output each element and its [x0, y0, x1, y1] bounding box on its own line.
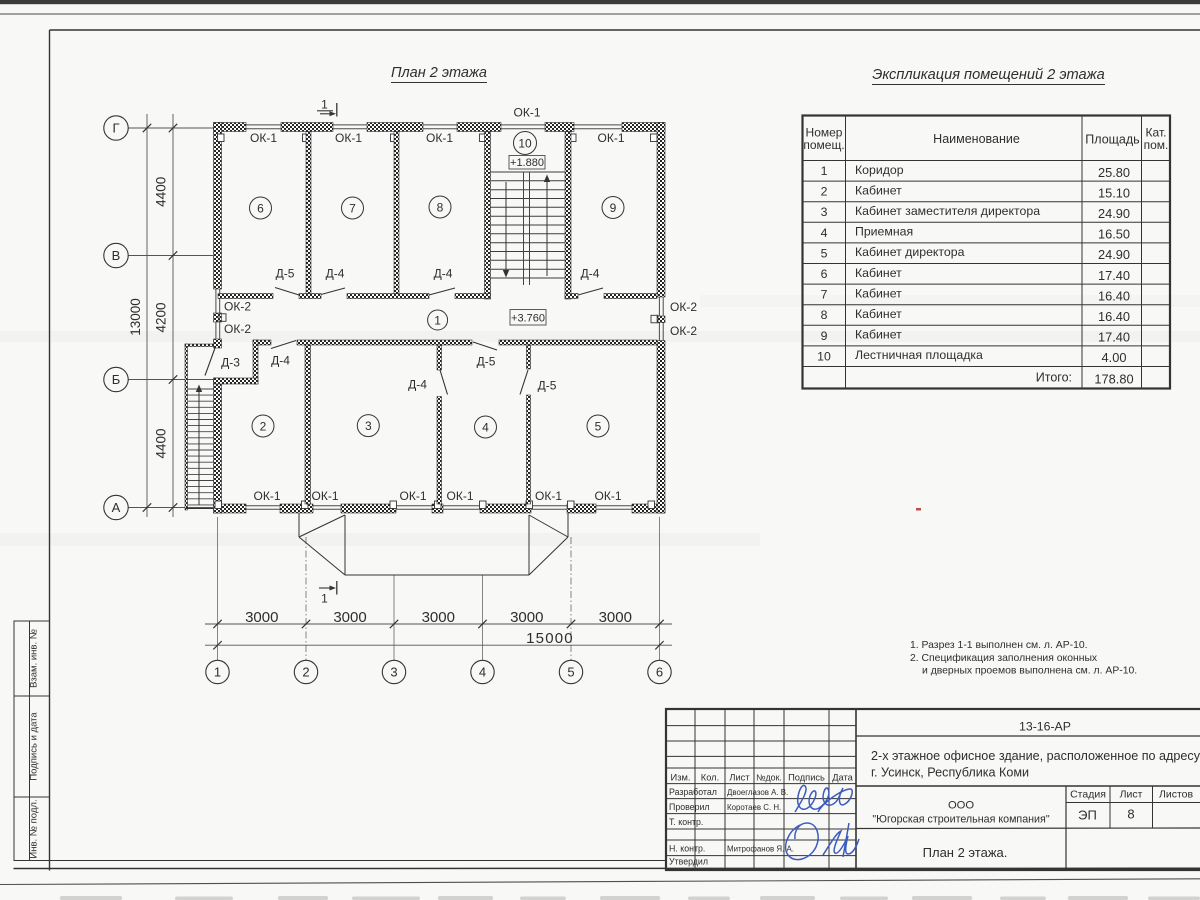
svg-text:А: А: [112, 500, 121, 515]
svg-text:2-х этажное офисное здание, ра: 2-х этажное офисное здание, расположенно…: [871, 749, 1200, 763]
svg-text:ОК-1: ОК-1: [400, 489, 427, 503]
svg-text:ОК-1: ОК-1: [447, 489, 474, 503]
svg-text:Кабинет: Кабинет: [855, 266, 902, 280]
svg-text:Д-5: Д-5: [276, 267, 295, 281]
svg-text:Разработал: Разработал: [669, 787, 717, 797]
svg-text:1: 1: [821, 164, 828, 178]
svg-text:г. Усинск, Республика Коми: г. Усинск, Республика Коми: [871, 766, 1029, 780]
svg-text:4200: 4200: [154, 302, 169, 332]
svg-text:Б: Б: [112, 372, 121, 387]
svg-text:ОК-1: ОК-1: [254, 489, 281, 503]
svg-text:Лист: Лист: [1120, 789, 1143, 801]
svg-text:1: 1: [321, 98, 328, 112]
svg-text:15.10: 15.10: [1098, 185, 1130, 200]
svg-text:ОК-2: ОК-2: [224, 300, 251, 314]
svg-text:5: 5: [821, 246, 828, 260]
svg-text:Коротаев С. Н.: Коротаев С. Н.: [727, 803, 781, 812]
svg-text:Инв. № подл.: Инв. № подл.: [29, 799, 40, 858]
svg-text:и дверных проемов выполнена см: и дверных проемов выполнена см. л. АР-10…: [922, 666, 1137, 677]
svg-text:5: 5: [567, 665, 574, 680]
svg-text:Итого:: Итого:: [1036, 371, 1072, 385]
svg-text:ЭП: ЭП: [1078, 808, 1097, 823]
svg-text:Д-5: Д-5: [477, 355, 496, 369]
svg-text:3: 3: [365, 419, 372, 433]
svg-text:4: 4: [821, 226, 828, 240]
svg-text:25.80: 25.80: [1098, 165, 1130, 180]
svg-text:В: В: [112, 248, 121, 263]
svg-text:Коридор: Коридор: [855, 163, 904, 177]
svg-text:пом.: пом.: [1144, 138, 1169, 152]
svg-text:Д-4: Д-4: [326, 267, 345, 281]
svg-text:Кабинет: Кабинет: [855, 183, 902, 197]
svg-text:16.50: 16.50: [1098, 227, 1130, 242]
svg-text:Митрофанов Я. А.: Митрофанов Я. А.: [727, 845, 794, 854]
svg-text:3000: 3000: [422, 609, 455, 626]
svg-text:Подпись: Подпись: [788, 773, 825, 783]
svg-text:13-16-АР: 13-16-АР: [1019, 720, 1071, 734]
svg-text:Д-4: Д-4: [434, 267, 453, 281]
svg-text:4400: 4400: [154, 177, 169, 207]
svg-text:ОК-2: ОК-2: [670, 324, 697, 338]
svg-text:ОК-2: ОК-2: [224, 322, 251, 336]
svg-text:Приемная: Приемная: [855, 225, 913, 239]
svg-text:24.90: 24.90: [1098, 206, 1130, 221]
svg-text:Кабинет: Кабинет: [855, 307, 902, 321]
svg-text:Г: Г: [112, 121, 119, 136]
svg-text:2: 2: [821, 185, 828, 199]
svg-text:Кабинет директора: Кабинет директора: [855, 245, 965, 259]
svg-text:16.40: 16.40: [1098, 288, 1130, 303]
svg-text:ОК-1: ОК-1: [335, 131, 362, 145]
svg-text:4400: 4400: [154, 428, 169, 458]
svg-text:Кабинет заместителя директора: Кабинет заместителя директора: [855, 204, 1040, 218]
svg-text:6: 6: [257, 201, 264, 215]
svg-text:Д-4: Д-4: [581, 267, 600, 281]
svg-text:2: 2: [260, 419, 267, 433]
svg-text:5: 5: [595, 419, 602, 433]
svg-text:ОК-1: ОК-1: [595, 489, 622, 503]
svg-text:1. Разрез 1-1 выполнен см. л.: 1. Разрез 1-1 выполнен см. л. АР-10.: [910, 640, 1088, 651]
svg-text:Лестничная площадка: Лестничная площадка: [855, 348, 983, 362]
svg-text:ОК-1: ОК-1: [514, 106, 541, 120]
svg-text:16.40: 16.40: [1098, 309, 1130, 324]
svg-text:Наименование: Наименование: [933, 132, 1020, 146]
svg-text:ОК-1: ОК-1: [250, 131, 277, 145]
svg-text:Кол.: Кол.: [701, 773, 719, 783]
svg-text:Двоеглазов А. В.: Двоеглазов А. В.: [727, 788, 788, 797]
svg-text:1: 1: [321, 592, 328, 606]
svg-text:6: 6: [821, 267, 828, 281]
svg-text:3000: 3000: [599, 609, 632, 626]
svg-text:3: 3: [390, 665, 397, 680]
svg-text:7: 7: [821, 288, 828, 302]
svg-text:№док.: №док.: [756, 773, 782, 783]
svg-text:Т. контр.: Т. контр.: [669, 817, 703, 827]
svg-text:ОК-1: ОК-1: [426, 131, 453, 145]
svg-text:Лист: Лист: [729, 773, 750, 783]
svg-text:Дата: Дата: [832, 773, 853, 783]
svg-text:2: 2: [302, 665, 309, 680]
svg-text:10: 10: [817, 349, 831, 363]
svg-text:3000: 3000: [245, 609, 278, 626]
svg-text:+1.880: +1.880: [510, 157, 544, 169]
svg-text:Взам. инв. №: Взам. инв. №: [29, 629, 40, 688]
svg-text:помещ.: помещ.: [803, 138, 844, 152]
svg-text:17.40: 17.40: [1098, 330, 1130, 345]
svg-text:+3.760: +3.760: [511, 313, 545, 325]
svg-text:ОК-2: ОК-2: [670, 300, 697, 314]
svg-text:1: 1: [434, 313, 441, 327]
svg-text:Д-5: Д-5: [538, 379, 557, 393]
svg-text:1: 1: [214, 665, 221, 680]
svg-text:4.00: 4.00: [1102, 350, 1127, 365]
svg-text:17.40: 17.40: [1098, 268, 1130, 283]
svg-text:Утвердил: Утвердил: [669, 857, 708, 867]
svg-text:6: 6: [656, 665, 663, 680]
svg-text:3000: 3000: [333, 609, 366, 626]
svg-text:3000: 3000: [510, 609, 543, 626]
svg-text:Листов: Листов: [1159, 789, 1194, 801]
svg-text:ОК-1: ОК-1: [535, 489, 562, 503]
svg-text:Д-4: Д-4: [408, 378, 427, 392]
svg-text:ОК-1: ОК-1: [312, 489, 339, 503]
svg-text:9: 9: [610, 201, 617, 215]
svg-text:4: 4: [479, 665, 486, 680]
svg-text:План 2 этажа.: План 2 этажа.: [923, 845, 1008, 860]
svg-text:13000: 13000: [128, 298, 143, 336]
svg-text:Подпись и дата: Подпись и дата: [29, 712, 40, 781]
svg-text:План 2 этажа: План 2 этажа: [391, 65, 487, 81]
svg-text:4: 4: [482, 420, 489, 434]
svg-text:178.80: 178.80: [1094, 372, 1133, 387]
svg-text:Площадь: Площадь: [1085, 133, 1139, 147]
svg-text:Проверил: Проверил: [669, 802, 710, 812]
svg-text:Стадия: Стадия: [1070, 789, 1106, 801]
svg-text:ОК-1: ОК-1: [598, 131, 625, 145]
svg-text:9: 9: [821, 329, 828, 343]
svg-text:Кабинет: Кабинет: [855, 286, 902, 300]
svg-text:Изм.: Изм.: [671, 773, 691, 783]
svg-text:Д-3: Д-3: [221, 356, 240, 370]
svg-text:Экспликация помещений 2 этажа: Экспликация помещений 2 этажа: [872, 67, 1105, 83]
svg-text:"Югорская строительная компани: "Югорская строительная компания": [872, 814, 1049, 826]
svg-text:Кабинет: Кабинет: [855, 328, 902, 342]
svg-text:15000: 15000: [526, 630, 574, 647]
svg-text:8: 8: [437, 200, 444, 214]
svg-text:10: 10: [518, 136, 532, 150]
svg-text:3: 3: [821, 205, 828, 219]
svg-text:7: 7: [349, 201, 356, 215]
svg-text:Д-4: Д-4: [271, 354, 290, 368]
svg-text:8: 8: [1127, 807, 1134, 822]
svg-text:24.90: 24.90: [1098, 247, 1130, 262]
svg-text:8: 8: [821, 308, 828, 322]
svg-text:ООО: ООО: [948, 800, 974, 812]
svg-text:Н. контр.: Н. контр.: [669, 844, 705, 854]
svg-text:2. Спецификация заполнения око: 2. Спецификация заполнения оконных: [910, 652, 1098, 664]
